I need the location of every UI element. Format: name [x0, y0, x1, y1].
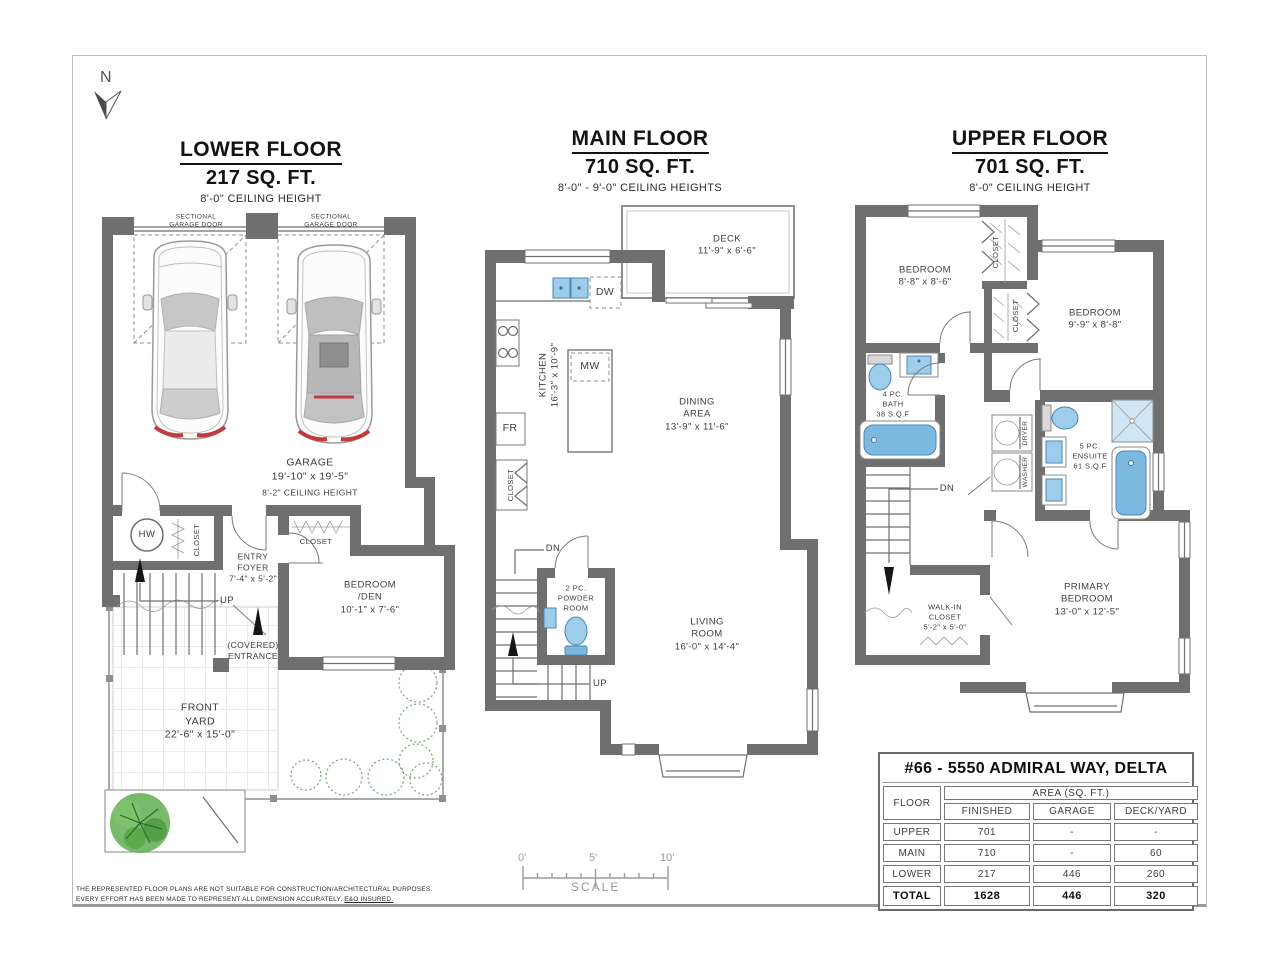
label-dining: DINING AREA 13'-9" x 11'-6"	[665, 396, 729, 433]
bay-window	[1026, 693, 1124, 712]
main-floor-title: MAIN FLOOR	[572, 127, 709, 154]
ensuite-toilet	[1052, 407, 1078, 429]
row-lower-deck: 260	[1114, 865, 1198, 883]
label-upper-dn: DN	[940, 483, 955, 495]
bay-window	[659, 755, 747, 777]
col-header-area: AREA (SQ. FT.)	[944, 786, 1198, 800]
main-floor-title-block: MAIN FLOOR 710 SQ. FT. 8'-0" - 9'-0" CEI…	[558, 127, 722, 194]
main-floor-plan	[470, 200, 840, 800]
north-arrow-filled-half	[94, 91, 106, 119]
label-garage: GARAGE 19'-10" x 19'-5"	[272, 456, 349, 483]
label-main-closet: CLOSET	[506, 469, 516, 501]
upper-stairs	[864, 467, 938, 618]
label-main-dn: DN	[546, 543, 561, 555]
label-up: UP	[220, 595, 234, 607]
label-foyer-closet: CLOSET	[192, 524, 202, 556]
address-title: #66 - 5550 ADMIRAL WAY, DELTA	[882, 756, 1190, 783]
floorplan-page: N LOWER FLOOR 217 SQ. FT. 8'-0" CEILING …	[0, 0, 1280, 960]
label-front-yard: FRONT YARD 22'-6" x 15'-0"	[165, 702, 236, 743]
tree-icon	[110, 793, 170, 853]
north-arrow-open-half	[106, 91, 121, 119]
row-total-deck: 320	[1114, 886, 1198, 906]
car-icon	[287, 245, 381, 443]
label-bath: 4 PC. BATH 38 S.Q.F	[876, 389, 909, 418]
label-dw: DW	[596, 286, 614, 300]
main-windows	[525, 250, 818, 777]
label-deck: DECK 11'-9" x 6'-6"	[698, 234, 756, 259]
label-covered-entrance: (COVERED) ENTRANCE	[227, 640, 278, 662]
label-walkin-closet: WALK-IN CLOSET 5'-2" x 5'-0"	[924, 602, 967, 631]
car-icon	[143, 241, 237, 439]
upper-floor-ceiling: 8'-0" CEILING HEIGHT	[952, 182, 1108, 194]
col-header-finished: FINISHED	[944, 803, 1030, 820]
main-floor-area: 710 SQ. FT.	[558, 156, 722, 179]
powder-toilet	[565, 617, 587, 645]
disclaimer-line1: THE REPRESENTED FLOOR PLANS ARE NOT SUIT…	[76, 885, 536, 895]
ensuite-fixtures	[1042, 400, 1153, 549]
label-bedroom1: BEDROOM 8'-8" x 8'-6"	[898, 265, 951, 290]
lower-floor-title: LOWER FLOOR	[180, 138, 342, 165]
disclaimer-line2: EVERY EFFORT HAS BEEN MADE TO REPRESENT …	[76, 895, 536, 905]
stairs-down-arrow-icon	[884, 567, 894, 595]
upper-floor-title-block: UPPER FLOOR 701 SQ. FT. 8'-0" CEILING HE…	[952, 127, 1108, 194]
col-header-floor: FLOOR	[883, 786, 941, 820]
lower-floor-area: 217 SQ. FT.	[180, 167, 342, 190]
lower-floor-plan	[100, 205, 460, 880]
upper-floor-area: 701 SQ. FT.	[952, 156, 1108, 179]
label-entry-foyer: ENTRY FOYER 7'-4" x 5'-2"	[229, 551, 277, 584]
label-upper-closet1: CLOSET	[991, 236, 1001, 268]
row-total-label: TOTAL	[883, 886, 941, 906]
powder-sink	[544, 608, 556, 628]
north-label: N	[100, 69, 112, 86]
row-upper-floor: UPPER	[883, 823, 941, 841]
label-powder-room: 2 PC. POWDER ROOM	[558, 583, 594, 612]
row-lower-garage: 446	[1033, 865, 1111, 883]
row-upper-garage: -	[1033, 823, 1111, 841]
label-fr: FR	[503, 422, 518, 436]
ensuite-toilet-tank	[1042, 405, 1051, 431]
label-hw: HW	[139, 529, 156, 541]
row-main-finished: 710	[944, 844, 1030, 862]
scale-10: 10'	[660, 852, 674, 864]
row-lower-finished: 217	[944, 865, 1030, 883]
label-bedroom-den: BEDROOM /DEN 10'-1" x 7'-6"	[341, 579, 400, 616]
north-arrow-icon: N	[85, 65, 139, 129]
bath-toilet-tank	[868, 355, 892, 364]
label-mw: MW	[580, 360, 599, 374]
label-upper-closet2: CLOSET	[1011, 300, 1021, 332]
label-garage-ceiling: 8'-2" CEILING HEIGHT	[262, 487, 358, 498]
scale-5: 5'	[589, 852, 597, 864]
stairs-up-arrow-icon	[508, 632, 518, 656]
col-header-deckyard: DECK/YARD	[1114, 803, 1198, 820]
lower-floor-ceiling: 8'-0" CEILING HEIGHT	[180, 193, 342, 205]
label-primary-bedroom: PRIMARY BEDROOM 13'-0" x 12'-5"	[1055, 581, 1119, 618]
row-total-garage: 446	[1033, 886, 1111, 906]
main-floor-ceiling: 8'-0" - 9'-0" CEILING HEIGHTS	[558, 182, 722, 194]
label-sectional-door-left: SECTIONAL GARAGE DOOR	[169, 214, 223, 231]
main-walls	[485, 250, 818, 755]
row-main-deck: 60	[1114, 844, 1198, 862]
lower-windows	[323, 657, 395, 670]
label-washer: WASHER	[1022, 457, 1030, 488]
upper-floor-title: UPPER FLOOR	[952, 127, 1108, 154]
row-main-floor: MAIN	[883, 844, 941, 862]
row-upper-finished: 701	[944, 823, 1030, 841]
scale-label: SCALE	[571, 880, 620, 894]
label-main-up: UP	[593, 678, 607, 690]
row-total-finished: 1628	[944, 886, 1030, 906]
area-table: #66 - 5550 ADMIRAL WAY, DELTA FLOOR AREA…	[878, 752, 1194, 911]
row-upper-deck: -	[1114, 823, 1198, 841]
disclaimer-line2-text: EVERY EFFORT HAS BEEN MADE TO REPRESENT …	[76, 896, 344, 903]
lower-floor-title-block: LOWER FLOOR 217 SQ. FT. 8'-0" CEILING HE…	[180, 138, 342, 205]
label-bedroom2: BEDROOM 9'-9" x 8'-8"	[1068, 308, 1121, 333]
row-main-garage: -	[1033, 844, 1111, 862]
bath-toilet	[869, 364, 891, 390]
bushes	[291, 664, 442, 795]
label-living: LIVING ROOM 16'-0" x 14'-4"	[675, 616, 739, 653]
disclaimer-eo-insured: E&O INSURED.	[344, 896, 393, 903]
label-bedroom-closet: CLOSET	[300, 537, 332, 547]
row-lower-floor: LOWER	[883, 865, 941, 883]
label-dryer: DRYER	[1022, 421, 1030, 446]
label-sectional-door-right: SECTIONAL GARAGE DOOR	[304, 214, 358, 231]
disclaimer: THE REPRESENTED FLOOR PLANS ARE NOT SUIT…	[76, 885, 536, 905]
scale-0: 0'	[518, 852, 526, 864]
label-kitchen: KITCHEN 16'-3" x 10'-9"	[538, 343, 563, 407]
label-ensuite: 5 PC. ENSUITE 61 S.Q.F	[1072, 441, 1107, 470]
col-header-garage: GARAGE	[1033, 803, 1111, 820]
